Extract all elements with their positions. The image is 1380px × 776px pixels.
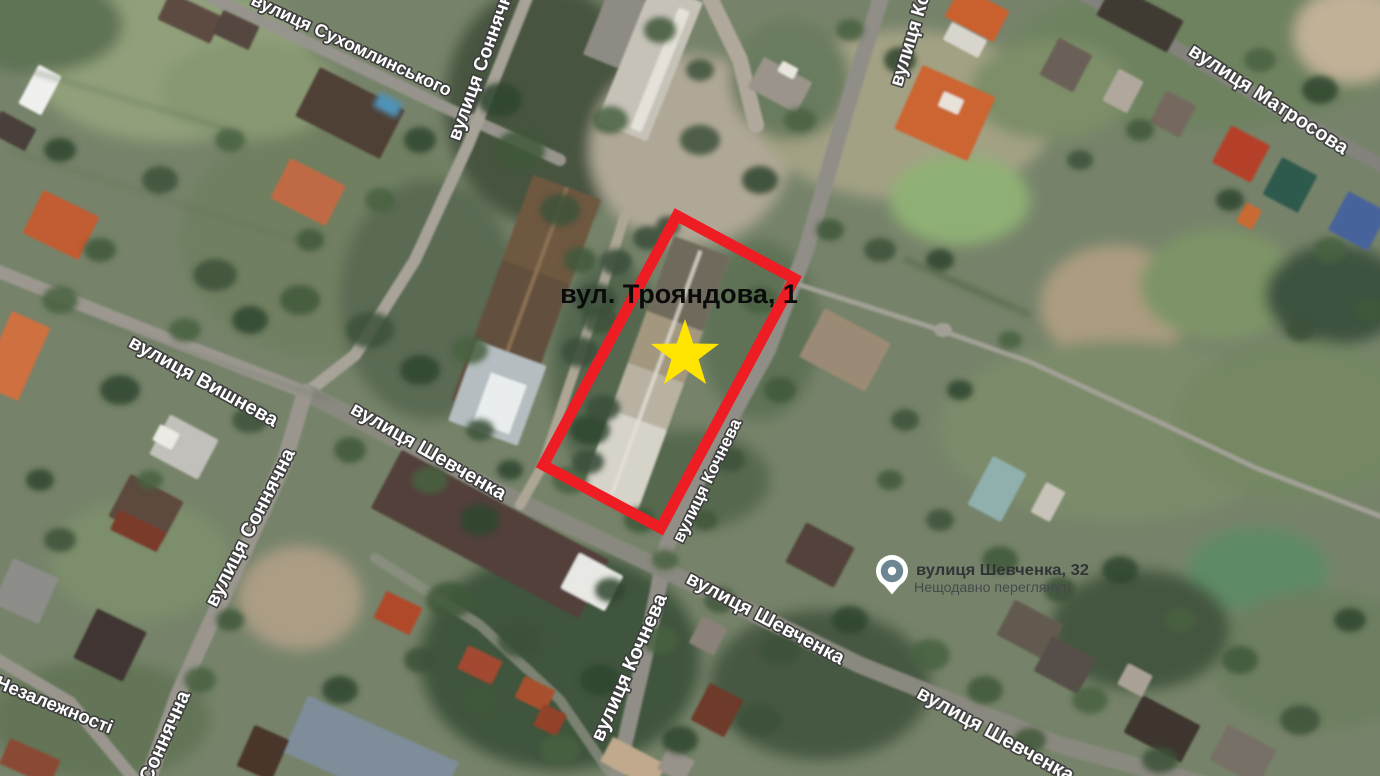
svg-text:вулиця Шевченка, 32: вулиця Шевченка, 32: [916, 562, 1089, 579]
svg-text:вул. Трояндова, 1: вул. Трояндова, 1: [560, 279, 798, 309]
svg-text:Нещодавно переглянуті: Нещодавно переглянуті: [914, 580, 1071, 595]
